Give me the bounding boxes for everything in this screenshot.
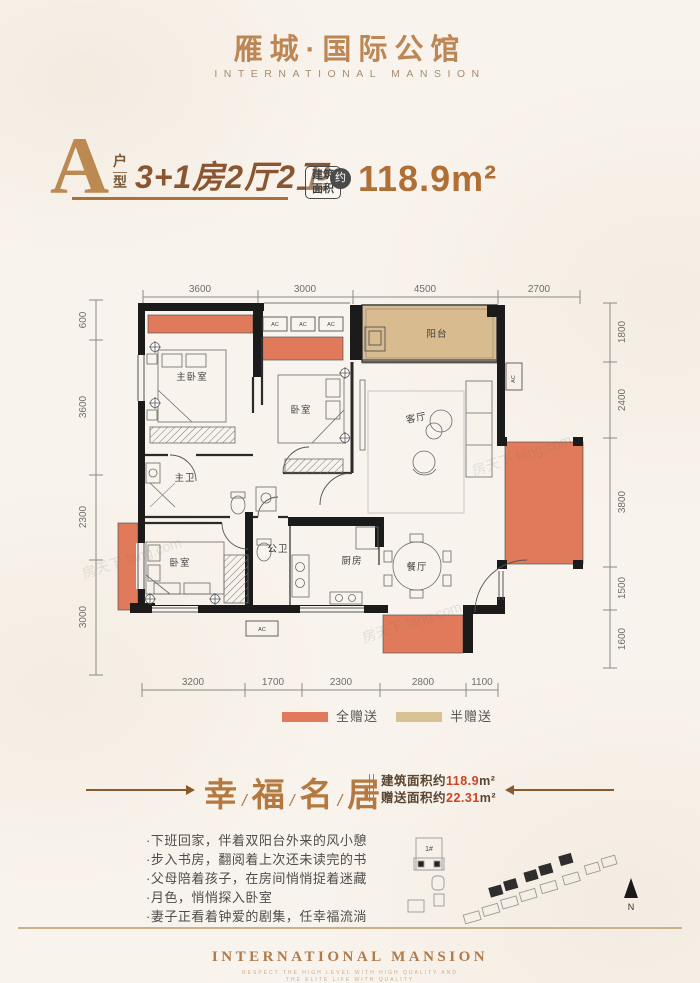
- banner-left-line: [86, 789, 186, 791]
- brand-title: 雁城·国际公馆: [0, 26, 700, 68]
- north-arrow-icon: [624, 878, 638, 898]
- legend-label-half-gift: 半赠送: [450, 706, 492, 725]
- banner-separator: /: [290, 791, 295, 811]
- legend-swatch-full-gift: [282, 712, 328, 722]
- banner-gift-value: 22.31: [446, 791, 480, 805]
- gift-strip-bottom: [383, 615, 463, 653]
- dim-right-5: 1600: [617, 627, 628, 650]
- room-labels: 主卧室 卧室 客厅 阳台 主卫 卧室 公卫 厨房 餐厅: [169, 328, 447, 573]
- unit-area-value: 118.9m²: [358, 158, 497, 200]
- dim-left-2: 3600: [78, 395, 89, 418]
- banner-gift-label: 赠送面积约: [381, 791, 446, 805]
- badge-line2: 面积: [312, 183, 334, 195]
- bullet-line: ·下班回家，伴着双阳台外来的风小憩: [146, 830, 367, 849]
- banner-area-label: 建筑面积约: [381, 774, 446, 788]
- bullet-line: ·妻子正看着钟爱的剧集，任幸福流淌: [146, 906, 367, 925]
- unit-suffix-char2: 型: [113, 174, 127, 190]
- dim-right-3: 3800: [617, 490, 628, 513]
- site-buildings: [408, 838, 621, 924]
- room-label-master-bath: 主卫: [174, 472, 195, 484]
- ac-label-2: AC: [299, 322, 307, 328]
- north-label: N: [628, 902, 635, 912]
- dim-right-4: 1500: [617, 576, 628, 599]
- room-label-bedroom2: 卧室: [290, 404, 311, 416]
- banner-area-value: 118.9: [446, 774, 479, 788]
- dim-top-2: 3000: [294, 284, 317, 295]
- dim-left-3: 2300: [78, 505, 89, 528]
- room-label-balcony: 阳台: [426, 328, 447, 340]
- banner-gift-unit: m²: [480, 791, 496, 805]
- gift-strip-master-top: [148, 315, 253, 333]
- approx-badge: 约: [330, 168, 351, 189]
- bullet-line: ·父母陪着孩子，在房间悄悄捉着迷藏: [146, 868, 367, 887]
- poster-page: 雁城·国际公馆 INTERNATIONAL MANSION A 户 型 3+1房…: [0, 0, 700, 983]
- banner-char-1: 幸: [204, 768, 237, 816]
- ac-label-1: AC: [271, 322, 279, 328]
- ac-label-3: AC: [327, 322, 335, 328]
- room-label-shared-bath: 公卫: [267, 544, 288, 555]
- dim-left-1: 600: [78, 311, 89, 328]
- footer-title: INTERNATIONAL MANSION: [0, 949, 700, 966]
- room-label-dining: 餐厅: [406, 561, 427, 573]
- room-label-living: 客厅: [405, 410, 428, 426]
- brand-subtitle: INTERNATIONAL MANSION: [0, 68, 700, 80]
- dim-top-3: 4500: [414, 284, 437, 295]
- footer-rule: [18, 927, 682, 929]
- legend-label-full-gift: 全赠送: [336, 706, 378, 725]
- gift-strip-bedroom3-left: [118, 523, 138, 610]
- banner-left-arrow: [186, 785, 195, 795]
- room-label-master-bedroom: 主卧室: [176, 371, 208, 383]
- furniture: [146, 350, 492, 604]
- unit-layout: 3+1房2厅2卫: [135, 152, 329, 198]
- banner-right-arrow: [505, 785, 514, 795]
- dim-bottom-3: 2300: [330, 677, 353, 688]
- dim-left-4: 3000: [78, 605, 89, 628]
- dim-top-1: 3600: [189, 284, 212, 295]
- banner-title: 幸 / 福 / 名 / 居: [204, 768, 380, 816]
- ac-label-5: AC: [258, 627, 266, 633]
- site-plan: 1# N: [406, 836, 670, 926]
- dim-top-4: 2700: [528, 284, 551, 295]
- banner-char-3: 名: [299, 768, 332, 816]
- dim-bottom-5: 1100: [471, 677, 493, 688]
- ac-label-4: AC: [511, 375, 517, 383]
- door-arcs: [170, 447, 527, 612]
- dim-right-2: 2400: [617, 388, 628, 411]
- dim-bottom-1: 3200: [182, 677, 205, 688]
- dim-right-1: 1800: [617, 320, 628, 343]
- floor-plan: 3600 3000 4500 2700 600 3600 2300 3000 1…: [0, 255, 700, 700]
- banner-divider: [369, 774, 374, 802]
- banner-char-4: 居: [347, 768, 380, 816]
- footer-tagline-2: THE ELITE LIFE WITH QUALITY: [0, 977, 700, 983]
- unit-letter: A: [50, 126, 109, 206]
- room-label-kitchen: 厨房: [341, 555, 362, 567]
- banner-area-unit: m²: [479, 774, 495, 788]
- legend-swatch-half-gift: [396, 712, 442, 722]
- banner-char-2: 福: [252, 768, 285, 816]
- banner-gift-line: 赠送面积约22.31m²: [381, 787, 496, 806]
- banner-right-line: [514, 789, 614, 791]
- room-label-bedroom3: 卧室: [169, 557, 190, 569]
- banner-separator: /: [337, 791, 342, 811]
- unit-suffix-char1: 户: [113, 152, 127, 173]
- bullet-line: ·月色，悄悄探入卧室: [146, 887, 272, 906]
- banner-separator: /: [242, 791, 247, 811]
- unit-letter-suffix: 户 型: [113, 152, 127, 192]
- dim-bottom-4: 2800: [412, 677, 435, 688]
- footer-tagline-1: RESPECT THE HIGH LEVEL WITH HIGH QUALITY…: [0, 970, 700, 976]
- site-building-label: 1#: [425, 846, 433, 853]
- gift-area-right: [505, 442, 583, 564]
- gift-strip-bedroom2-top: [262, 337, 343, 360]
- dim-bottom-2: 1700: [262, 677, 285, 688]
- bullet-line: ·步入书房，翻阅着上次还未读完的书: [146, 849, 367, 868]
